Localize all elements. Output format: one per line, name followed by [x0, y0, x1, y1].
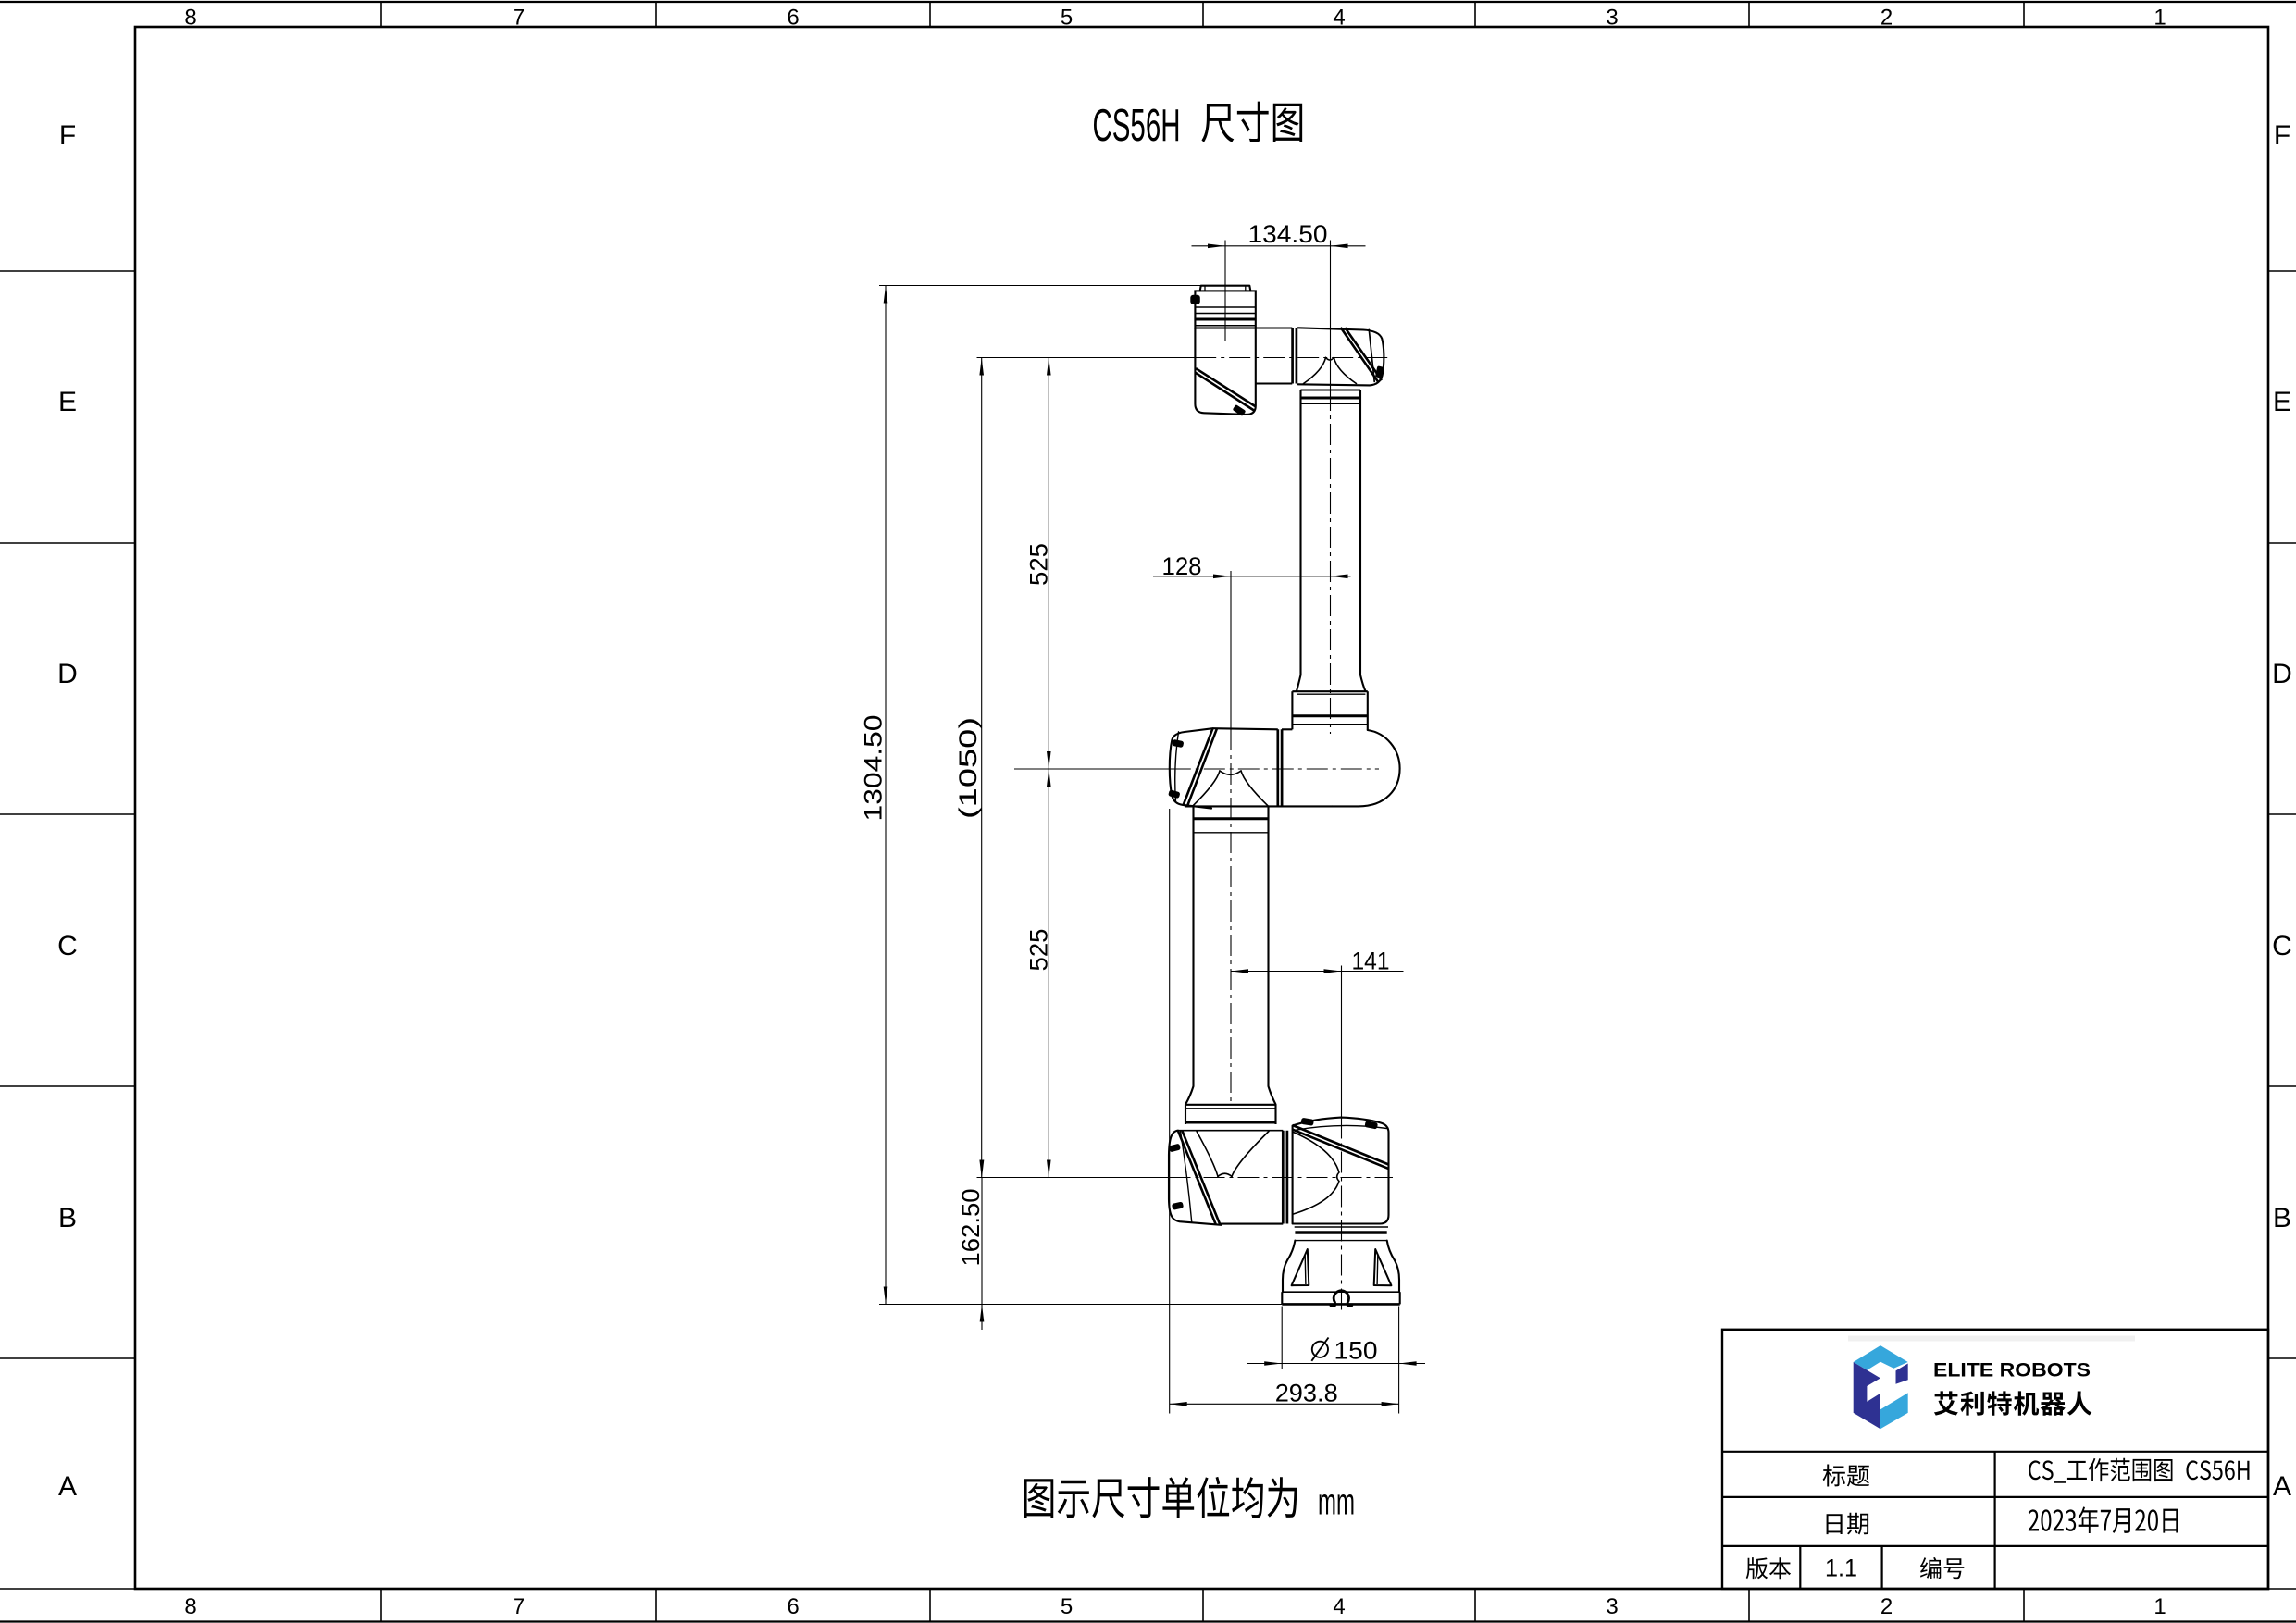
- svg-text:E: E: [58, 387, 77, 417]
- svg-text:525: 525: [1024, 543, 1052, 586]
- svg-text:A: A: [2273, 1471, 2291, 1502]
- svg-text:2: 2: [1880, 6, 1893, 31]
- svg-text:B: B: [58, 1203, 77, 1233]
- svg-text:3: 3: [1606, 1594, 1618, 1619]
- svg-text:1: 1: [2153, 1594, 2166, 1619]
- svg-text:C: C: [2272, 931, 2292, 961]
- svg-text:6: 6: [787, 6, 799, 31]
- svg-text:D: D: [57, 659, 78, 689]
- svg-text:C: C: [57, 931, 78, 961]
- svg-text:D: D: [2272, 659, 2292, 689]
- svg-text:6: 6: [787, 1594, 799, 1619]
- svg-text:150: 150: [1334, 1337, 1378, 1365]
- svg-text:(1050): (1050): [954, 717, 982, 819]
- svg-text:525: 525: [1024, 929, 1052, 972]
- svg-text:1.1: 1.1: [1825, 1555, 1857, 1582]
- svg-text:141: 141: [1352, 948, 1390, 975]
- svg-text:1304.50: 1304.50: [860, 715, 887, 822]
- svg-text:8: 8: [184, 6, 196, 31]
- svg-text:F: F: [2274, 120, 2290, 151]
- svg-text:E: E: [2273, 387, 2291, 417]
- svg-text:F: F: [59, 120, 76, 151]
- svg-text:7: 7: [513, 1594, 525, 1619]
- svg-text:B: B: [2273, 1203, 2291, 1233]
- svg-text:8: 8: [184, 1594, 196, 1619]
- svg-text:3: 3: [1606, 6, 1618, 31]
- svg-text:5: 5: [1061, 1594, 1073, 1619]
- svg-text:ELITE ROBOTS: ELITE ROBOTS: [1933, 1358, 2091, 1381]
- svg-text:128: 128: [1162, 552, 1202, 580]
- svg-text:162.50: 162.50: [957, 1189, 985, 1267]
- svg-text:134.50: 134.50: [1248, 220, 1328, 248]
- svg-text:4: 4: [1333, 1594, 1345, 1619]
- svg-text:CS56H: CS56H: [1093, 101, 1181, 151]
- svg-text:A: A: [58, 1471, 77, 1502]
- svg-text:1: 1: [2153, 6, 2166, 31]
- svg-text:5: 5: [1061, 6, 1073, 31]
- svg-text:2: 2: [1880, 1594, 1893, 1619]
- svg-text:4: 4: [1333, 6, 1345, 31]
- svg-text:7: 7: [513, 6, 525, 31]
- svg-text:mm: mm: [1318, 1482, 1355, 1523]
- svg-text:293.8: 293.8: [1275, 1380, 1338, 1407]
